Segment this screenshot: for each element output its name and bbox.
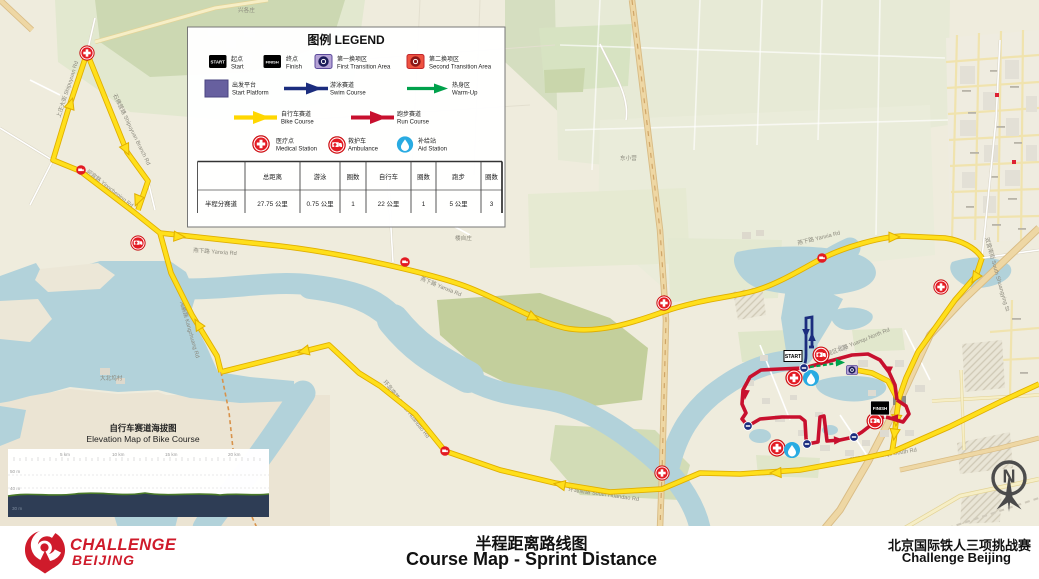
svg-text:3: 3: [490, 201, 494, 208]
svg-text:医疗点: 医疗点: [276, 137, 294, 145]
svg-text:热身区: 热身区: [452, 81, 470, 89]
svg-text:Warm-Up: Warm-Up: [452, 91, 478, 97]
svg-text:补给站: 补给站: [418, 137, 436, 145]
svg-text:START: START: [211, 60, 226, 65]
svg-text:自行车: 自行车: [379, 172, 399, 181]
svg-text:5 公里: 5 公里: [449, 200, 468, 208]
svg-text:Bike Course: Bike Course: [281, 120, 314, 126]
svg-text:圈数: 圈数: [417, 172, 430, 181]
svg-text:圈数: 圈数: [347, 172, 360, 181]
svg-text:总距离: 总距离: [263, 172, 282, 181]
svg-text:终点: 终点: [286, 55, 298, 63]
svg-text:游泳赛道: 游泳赛道: [330, 81, 354, 89]
svg-text:START: START: [785, 354, 801, 360]
svg-text:5 km: 5 km: [60, 452, 70, 457]
svg-text:兴各庄: 兴各庄: [238, 6, 255, 14]
svg-text:游泳: 游泳: [314, 172, 327, 181]
svg-text:第二换项区: 第二换项区: [429, 55, 459, 63]
svg-text:图例 LEGEND: 图例 LEGEND: [307, 32, 385, 47]
svg-text:22 公里: 22 公里: [378, 200, 400, 208]
svg-text:30 m: 30 m: [12, 506, 22, 511]
svg-text:15 km: 15 km: [165, 452, 178, 457]
svg-text:圈数: 圈数: [485, 172, 498, 181]
svg-text:Ambulance: Ambulance: [348, 147, 379, 153]
svg-text:FINISH: FINISH: [266, 60, 279, 65]
svg-text:1: 1: [422, 201, 426, 208]
svg-text:半程分赛道: 半程分赛道: [205, 199, 238, 208]
svg-text:Second Transition Area: Second Transition Area: [429, 65, 492, 71]
svg-text:Swim Course: Swim Course: [330, 91, 366, 97]
svg-text:40 m: 40 m: [10, 486, 20, 491]
svg-text:10 km: 10 km: [112, 452, 125, 457]
svg-text:第一换项区: 第一换项区: [337, 55, 367, 63]
svg-text:Run Course: Run Course: [397, 120, 430, 126]
svg-text:自行车赛道: 自行车赛道: [281, 110, 311, 118]
svg-text:Aid Station: Aid Station: [418, 147, 447, 153]
svg-text:Elevation Map of Bike Course: Elevation Map of Bike Course: [86, 434, 199, 444]
svg-text:Finish: Finish: [286, 65, 302, 71]
svg-text:救护车: 救护车: [348, 137, 366, 145]
svg-text:0.75 公里: 0.75 公里: [307, 200, 335, 208]
svg-text:First Transition Area: First Transition Area: [337, 65, 391, 71]
svg-text:Medical Station: Medical Station: [276, 147, 317, 153]
svg-text:跑步: 跑步: [452, 172, 465, 181]
svg-text:20 km: 20 km: [228, 452, 241, 457]
svg-text:楼自庄: 楼自庄: [455, 234, 472, 242]
svg-text:27.75 公里: 27.75 公里: [257, 200, 288, 208]
svg-text:FINISH: FINISH: [873, 406, 887, 411]
svg-text:跑步赛道: 跑步赛道: [397, 110, 421, 118]
svg-text:起点: 起点: [231, 55, 243, 63]
svg-text:大北坞村: 大北坞村: [100, 374, 123, 382]
svg-text:自行车赛道海拔图: 自行车赛道海拔图: [110, 423, 177, 433]
svg-text:Start Platform: Start Platform: [232, 91, 269, 97]
svg-text:1: 1: [351, 201, 355, 208]
svg-text:50 m: 50 m: [10, 469, 20, 474]
svg-text:Start: Start: [231, 65, 244, 71]
svg-text:东小营: 东小营: [620, 154, 637, 162]
svg-text:出发平台: 出发平台: [232, 81, 256, 89]
